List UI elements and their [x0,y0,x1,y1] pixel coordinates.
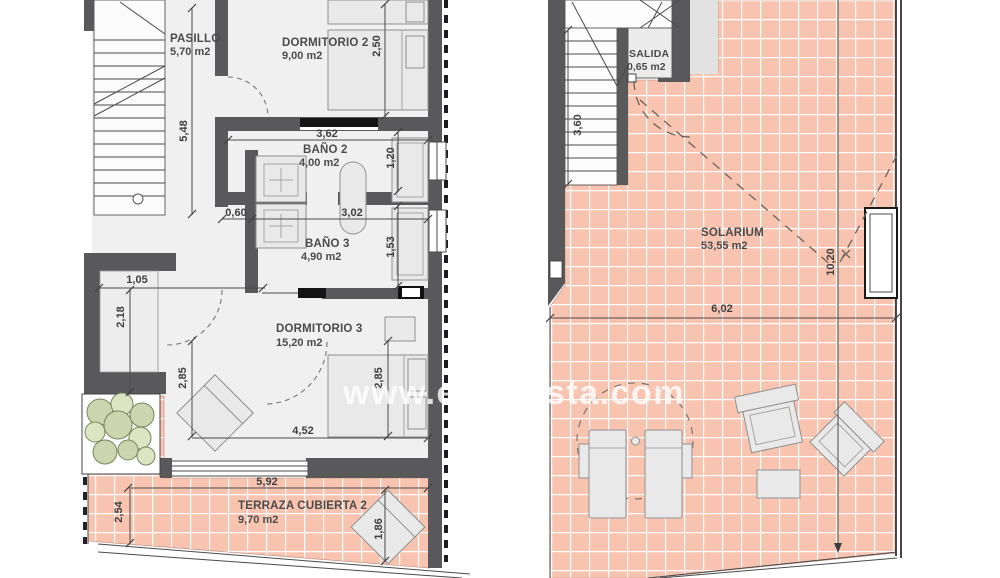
door-leaf [628,74,636,82]
room-area-terraza: 9,70 m2 [238,514,278,526]
roof-opening [865,208,897,298]
room-label-salida: SALIDA [629,48,670,60]
dim-1-53: 1,53 [385,236,397,257]
dim-2-54: 2,54 [113,500,125,522]
lounger-knob [632,437,640,445]
room-area-dormitorio3: 15,20 m2 [276,337,322,349]
dim-6-02: 6,02 [711,303,732,315]
roof-below [690,0,718,74]
dim-4-52: 4,52 [292,425,313,437]
floor-plan-drawing: PASILLO 5,70 m2 DORMITORIO 2 9,00 m2 BAÑ… [0,0,1000,578]
room-area-dormitorio2: 9,00 m2 [282,50,322,62]
room-area-bano3: 4,90 m2 [301,251,341,263]
room-label-bano3: BAÑO 3 [305,237,350,250]
side-table [757,470,800,498]
room-area-bano2: 4,00 m2 [299,157,339,169]
room-area-pasillo: 5,70 m2 [170,46,210,58]
dim-5-92: 5,92 [256,476,277,488]
dim-2-85-left: 2,85 [177,367,189,388]
room-label-dormitorio2: DORMITORIO 2 [282,37,369,49]
room-label-terraza: TERRAZA CUBIERTA 2 [238,500,367,512]
watermark-left: www.es [342,374,477,412]
room-label-solarium: SOLARIUM [701,227,764,239]
watermark-right: sta.com [546,374,685,412]
dim-0-60: 0,60 [225,207,246,219]
toilet [340,162,366,234]
watermark: www.es sta.com [342,374,685,412]
dim-2-18: 2,18 [115,306,127,327]
dim-10-20: 10,20 [825,248,837,276]
room-area-solarium: 53,55 m2 [701,240,747,252]
dim-1-86: 1,86 [373,518,385,539]
nightstand [385,317,415,341]
dim-3-62: 3,62 [316,128,337,140]
first-floor-plan: PASILLO 5,70 m2 DORMITORIO 2 9,00 m2 BAÑ… [82,0,470,578]
room-area-salida: 0,65 m2 [627,61,666,73]
dim-3-60: 3,60 [572,114,584,135]
dim-2-50: 2,50 [371,35,383,56]
room-label-pasillo: PASILLO [170,33,220,45]
room-label-dormitorio3: DORMITORIO 3 [276,323,363,335]
roof-plan: SALIDA 0,65 m2 SOLARIUM 53,55 m2 3,60 10… [546,0,901,578]
dim-3-02: 3,02 [341,207,362,219]
room-label-bano2: BAÑO 2 [303,143,348,156]
dim-1-05: 1,05 [126,274,147,286]
stairs [94,0,165,215]
dim-1-20: 1,20 [385,147,397,168]
plant [85,393,155,465]
dim-5-48: 5,48 [178,120,190,141]
bed-dorm2-a [328,0,428,24]
newel-post [133,194,143,204]
closet [100,271,158,372]
floor-plan-sheet: PASILLO 5,70 m2 DORMITORIO 2 9,00 m2 BAÑ… [0,0,1000,578]
sink-bano3 [256,204,306,248]
